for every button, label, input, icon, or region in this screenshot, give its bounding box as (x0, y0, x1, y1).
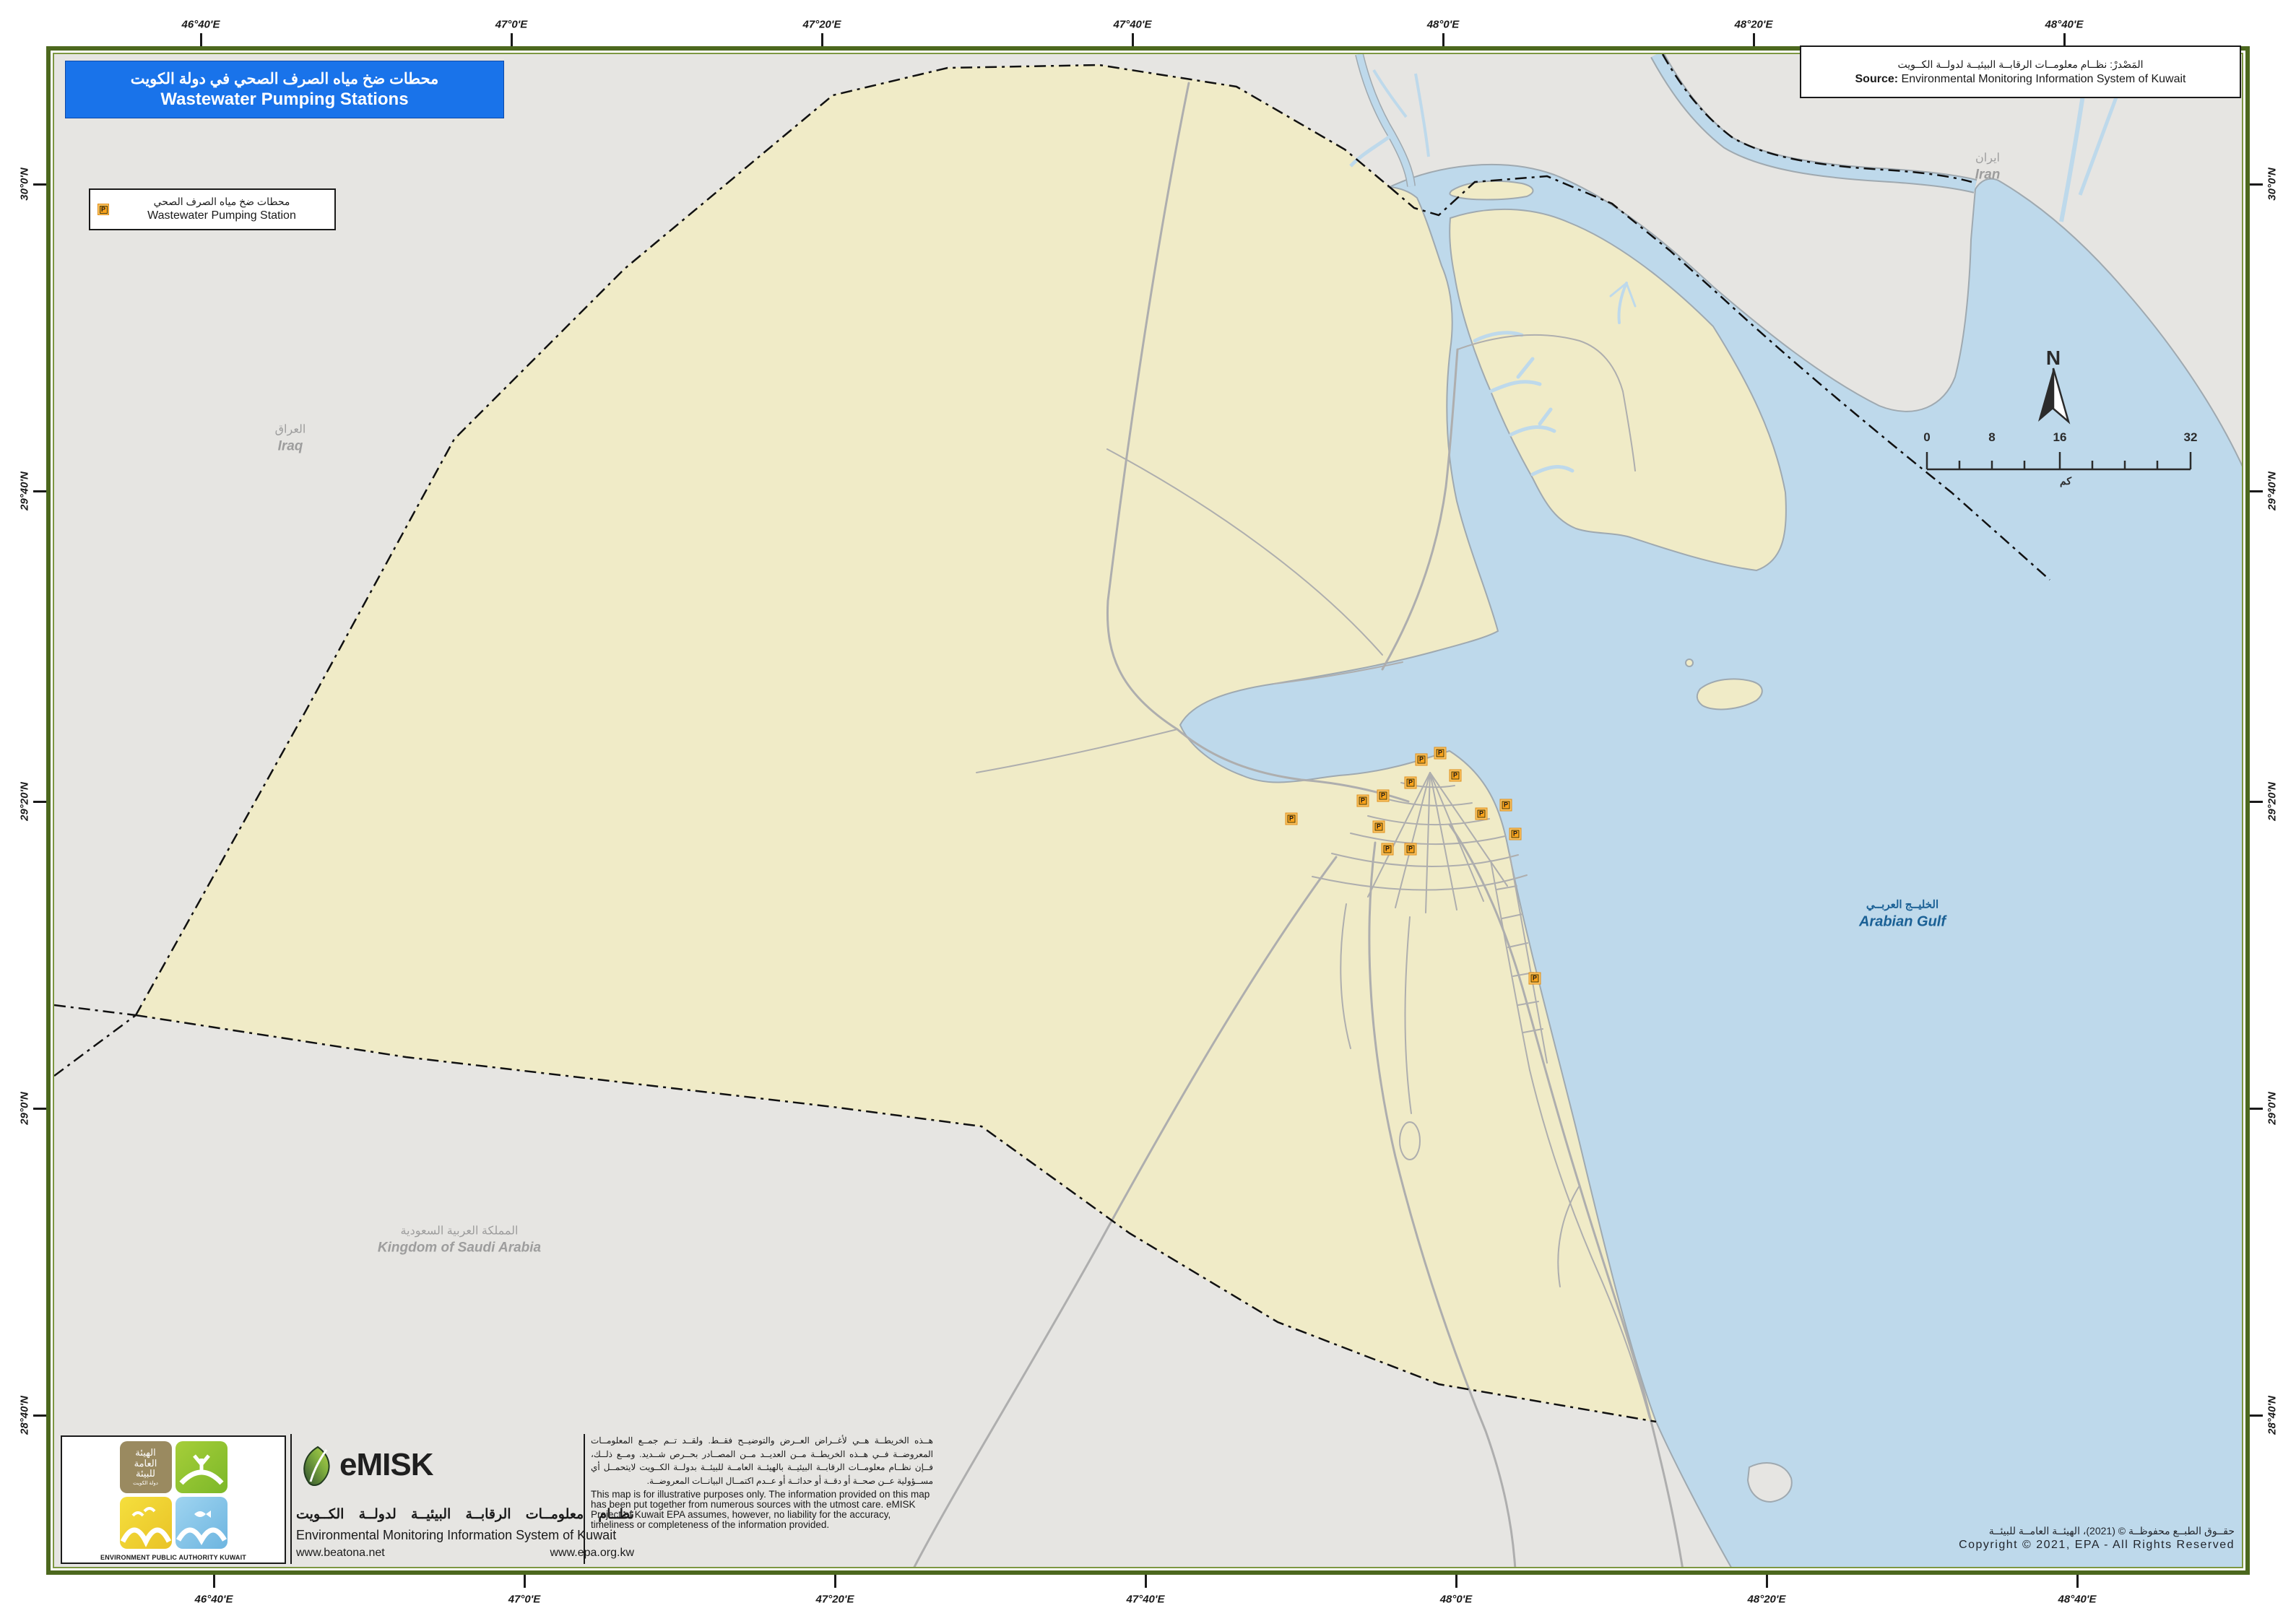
graticule-tick (821, 33, 823, 46)
graticule-tick (1753, 33, 1755, 46)
map-canvas[interactable] (53, 53, 2243, 1568)
footer-divider-1 (290, 1434, 292, 1564)
pumping-station-marker-letter: P (1452, 772, 1460, 780)
graticule-label: 29°20'N (19, 782, 31, 821)
pumping-station-marker[interactable]: P (1434, 747, 1447, 760)
graticule-tick (200, 33, 202, 46)
source-box: المَصْدرْ: نظــام معلومــات الرقابــة ال… (1800, 45, 2241, 98)
pumping-station-legend-icon: P (98, 204, 109, 215)
graticule-label: 47°0'E (495, 19, 528, 31)
graticule-tick (1455, 1575, 1457, 1588)
disclaimer-block: هــذه الخريطــة هــي لأغــراض العــرض وا… (591, 1434, 933, 1565)
kuwait-map-graphic (54, 54, 2243, 1568)
source-english: Source: Environmental Monitoring Informa… (1808, 73, 2232, 86)
map-page: 46°40'E47°0'E47°20'E47°40'E48°0'E48°20'E… (0, 0, 2296, 1621)
graticule-tick (524, 1575, 526, 1588)
disclaimer-english: This map is for illustrative purposes on… (591, 1490, 933, 1529)
saudi-arabia-label: المملكة العربية السعودية Kingdom of Saud… (378, 1224, 541, 1256)
north-arrow-icon (2028, 367, 2079, 428)
scale-bar-number: 0 (1923, 430, 1930, 445)
scale-bar-number: 8 (1988, 430, 1995, 445)
pumping-station-marker-letter: P (1502, 801, 1510, 809)
graticule-label: 48°40'E (2058, 1594, 2097, 1606)
graticule-tick (2063, 33, 2066, 46)
pumping-station-marker-letter: P (1379, 792, 1387, 800)
scale-bar-number: 16 (2053, 430, 2067, 445)
copyright-english: Copyright © 2021, EPA - All Rights Reser… (1849, 1539, 2235, 1552)
emisk-brand-name: eMISK (339, 1447, 433, 1483)
graticule-tick (2250, 183, 2263, 186)
scale-bar: 081632 كم (1907, 430, 2210, 495)
copyright: حقــوق الطبــع محفوظــة © (2021)، الهيئـ… (1849, 1525, 2235, 1552)
epa-logo-arabic-square: الهيئة العامة للبيئة دولة الكويت (120, 1441, 172, 1493)
graticule-label: 48°0'E (1440, 1594, 1473, 1606)
pumping-station-marker-letter: P (1407, 779, 1415, 787)
legend-label-english: Wastewater Pumping Station (116, 209, 327, 223)
legend-label-arabic: محطات ضخ مياه الصرف الصحي (116, 196, 327, 209)
graticule-tick (33, 1414, 46, 1417)
graticule-label: 29°40'N (19, 471, 31, 510)
graticule-label: 47°0'E (508, 1594, 541, 1606)
pumping-station-marker[interactable]: P (1382, 843, 1394, 856)
graticule-label: 29°20'N (2266, 782, 2279, 821)
graticule-label: 30°0'N (19, 168, 31, 200)
graticule-label: 48°20'E (1748, 1594, 1786, 1606)
map-frame (46, 46, 2250, 1575)
pumping-station-marker[interactable]: P (1357, 795, 1369, 807)
graticule-tick (1145, 1575, 1147, 1588)
emisk-block: eMISK نظــام معلومــات الرقابــة البيئيـ… (296, 1437, 637, 1563)
graticule-label: 46°40'E (182, 19, 220, 31)
graticule-label: 47°20'E (803, 19, 841, 31)
pumping-station-marker-letter: P (1512, 830, 1520, 838)
graticule-label: 48°20'E (1735, 19, 1773, 31)
map-title-arabic: محطات ضخ مياه الصرف الصحي في دولة الكويت (66, 70, 503, 88)
pumping-station-marker-letter: P (1437, 749, 1444, 757)
footer-divider-2 (584, 1434, 585, 1564)
graticule-label: 29°0'N (2266, 1092, 2279, 1124)
graticule-tick (33, 490, 46, 492)
scale-bar-unit: كم (2060, 475, 2071, 487)
graticule-tick (511, 33, 513, 46)
graticule-label: 47°40'E (1114, 19, 1152, 31)
pumping-station-marker[interactable]: P (1377, 790, 1390, 802)
graticule-label: 29°0'N (19, 1092, 31, 1124)
copyright-arabic: حقــوق الطبــع محفوظــة © (2021)، الهيئـ… (1849, 1525, 2235, 1537)
graticule-label: 48°0'E (1427, 19, 1460, 31)
miskan-island (1686, 659, 1693, 666)
pumping-station-marker-letter: P (1288, 815, 1296, 823)
source-label: Source: (1855, 73, 1899, 85)
pumping-station-marker[interactable]: P (1416, 754, 1428, 766)
pumping-station-marker[interactable]: P (1500, 799, 1512, 812)
epa-caption: ENVIRONMENT PUBLIC AUTHORITY KUWAIT (100, 1554, 246, 1561)
epa-logo-kuwait-text: دولة الكويت (120, 1481, 172, 1487)
arabian-gulf-label: الخليــج العربــي Arabian Gulf (1859, 898, 1946, 931)
iran-label: ايران Iran (1975, 151, 2001, 183)
pumping-station-marker[interactable]: P (1529, 973, 1541, 985)
pumping-station-marker[interactable]: P (1476, 808, 1488, 820)
pumping-station-marker-letter: P (1359, 797, 1367, 805)
pumping-station-marker-letter: P (1418, 756, 1426, 764)
legend-box[interactable]: P محطات ضخ مياه الصرف الصحي Wastewater P… (89, 188, 336, 230)
scale-bar-number: 32 (2184, 430, 2198, 445)
pumping-station-marker-letter: P (1407, 846, 1415, 853)
graticule-tick (2250, 801, 2263, 803)
epa-logo: الهيئة العامة للبيئة دولة الكويت ENVIRON… (61, 1435, 286, 1564)
pumping-station-marker-letter: P (1375, 823, 1383, 831)
pumping-station-marker-letter: P (1478, 810, 1486, 818)
map-title-box: محطات ضخ مياه الصرف الصحي في دولة الكويت… (65, 61, 504, 118)
graticule-label: 30°0'N (2266, 168, 2279, 200)
emisk-leaf-icon (299, 1444, 337, 1486)
graticule-tick (2250, 490, 2263, 492)
iraq-label: العراق Iraq (275, 422, 306, 455)
source-arabic: المَصْدرْ: نظــام معلومــات الرقابــة ال… (1808, 58, 2232, 71)
graticule-label: 29°40'N (2266, 471, 2279, 510)
graticule-tick (33, 801, 46, 803)
pumping-station-marker[interactable]: P (1405, 843, 1417, 856)
graticule-tick (1766, 1575, 1768, 1588)
graticule-label: 28°40'N (19, 1396, 31, 1435)
source-text: Environmental Monitoring Information Sys… (1902, 73, 2186, 85)
graticule-label: 46°40'E (195, 1594, 233, 1606)
graticule-tick (33, 1108, 46, 1110)
pumping-station-marker[interactable]: P (1509, 828, 1522, 840)
graticule-label: 48°40'E (2045, 19, 2084, 31)
beatona-link[interactable]: www.beatona.net (296, 1547, 385, 1560)
pumping-station-marker-letter: P (1384, 846, 1392, 853)
map-title-english: Wastewater Pumping Stations (66, 90, 503, 110)
disclaimer-arabic: هــذه الخريطــة هــي لأغــراض العــرض وا… (591, 1434, 933, 1487)
pumping-station-marker[interactable]: P (1286, 813, 1298, 825)
footer-bar: الهيئة العامة للبيئة دولة الكويت ENVIRON… (58, 1434, 933, 1565)
graticule-tick (1442, 33, 1444, 46)
graticule-label: 47°20'E (816, 1594, 854, 1606)
birds-icon (120, 1497, 172, 1549)
graticule-tick (2250, 1108, 2263, 1110)
graticule-label: 28°40'N (2266, 1396, 2279, 1435)
pumping-station-marker-letter: P (1531, 975, 1539, 983)
graticule-tick (213, 1575, 215, 1588)
fish-icon (176, 1497, 228, 1549)
plant-icon (176, 1441, 228, 1493)
graticule-tick (1132, 33, 1134, 46)
graticule-tick (2076, 1575, 2079, 1588)
pumping-station-marker[interactable]: P (1373, 821, 1385, 833)
graticule-tick (834, 1575, 836, 1588)
graticule-label: 47°40'E (1127, 1594, 1165, 1606)
graticule-tick (2250, 1414, 2263, 1417)
graticule-tick (33, 183, 46, 186)
pumping-station-marker[interactable]: P (1450, 770, 1462, 782)
pumping-station-marker[interactable]: P (1405, 777, 1417, 789)
